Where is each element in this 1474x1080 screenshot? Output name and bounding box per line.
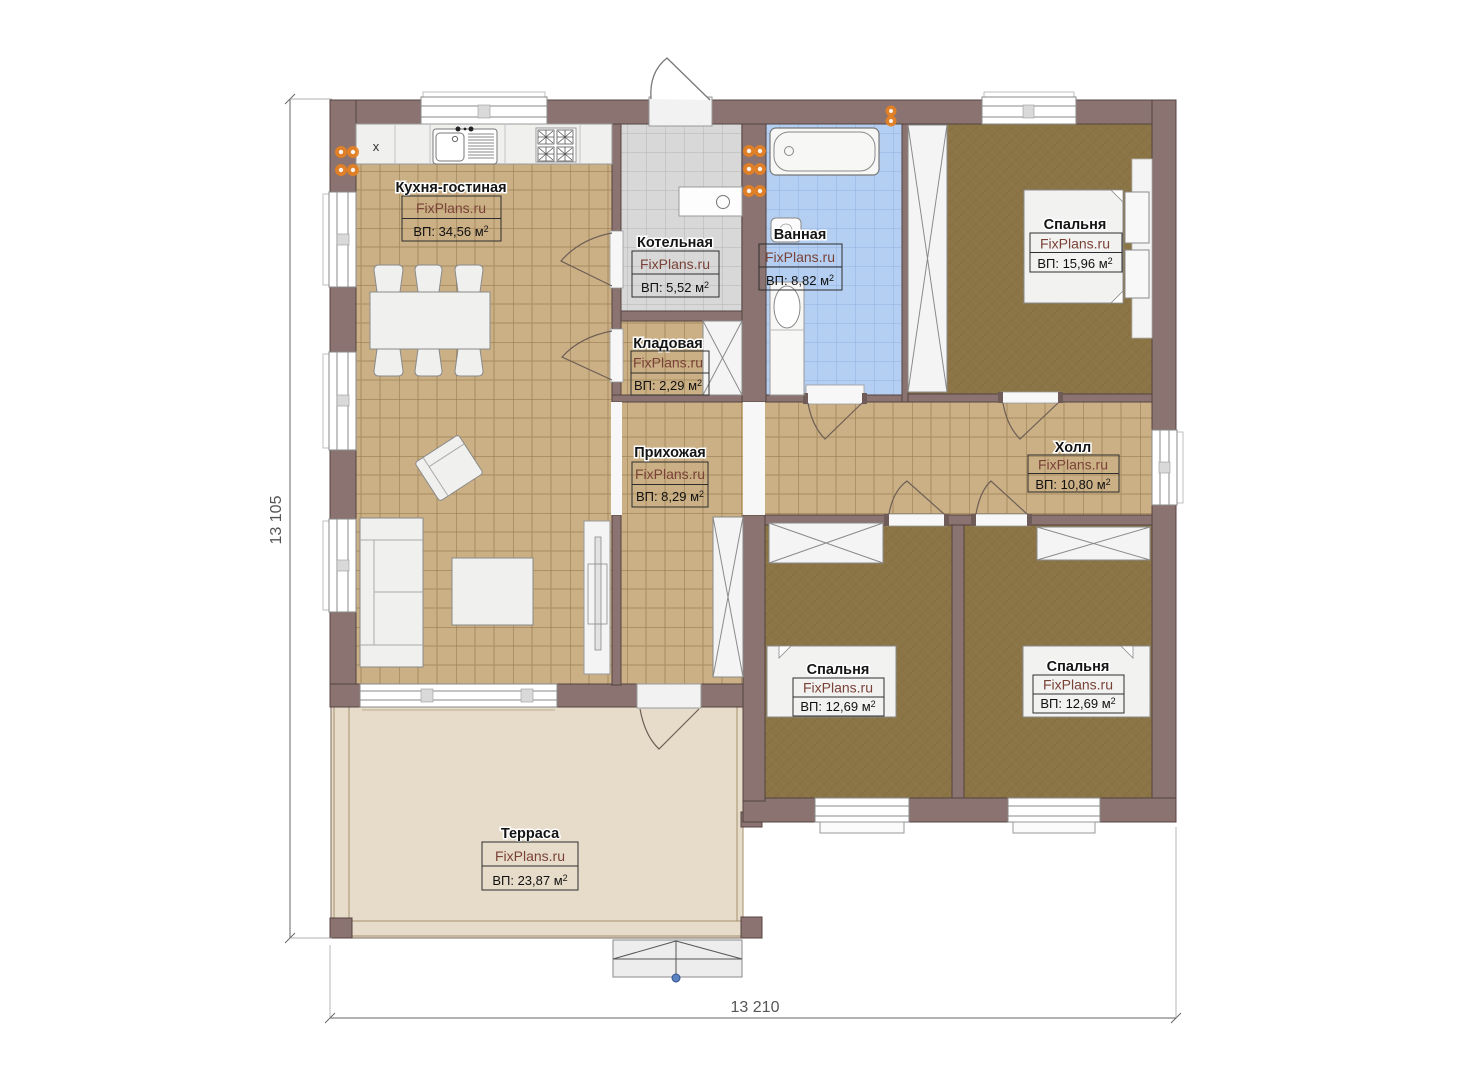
svg-text:Спальня: Спальня — [1047, 659, 1110, 675]
svg-text:13 210: 13 210 — [731, 999, 780, 1016]
svg-text:FixPlans.ru: FixPlans.ru — [633, 355, 703, 371]
svg-text:ВП: 8,82 м2: ВП: 8,82 м2 — [766, 273, 834, 288]
svg-text:Холл: Холл — [1055, 440, 1091, 456]
svg-text:ВП: 34,56 м2: ВП: 34,56 м2 — [413, 224, 488, 239]
svg-text:FixPlans.ru: FixPlans.ru — [803, 680, 873, 696]
svg-text:Терраса: Терраса — [501, 826, 560, 842]
svg-text:ВП: 23,87 м2: ВП: 23,87 м2 — [492, 873, 567, 888]
svg-text:FixPlans.ru: FixPlans.ru — [635, 466, 705, 482]
svg-text:13 105: 13 105 — [268, 495, 285, 544]
svg-text:ВП: 10,80 м2: ВП: 10,80 м2 — [1035, 477, 1110, 492]
svg-text:ВП: 2,29 м2: ВП: 2,29 м2 — [634, 378, 702, 393]
svg-text:ВП: 12,69 м2: ВП: 12,69 м2 — [1040, 696, 1115, 711]
svg-text:FixPlans.ru: FixPlans.ru — [640, 256, 710, 272]
svg-text:x: x — [373, 139, 380, 154]
svg-text:FixPlans.ru: FixPlans.ru — [1043, 677, 1113, 693]
svg-text:Спальня: Спальня — [1044, 217, 1107, 233]
svg-text:ВП: 5,52 м2: ВП: 5,52 м2 — [641, 280, 709, 295]
svg-text:ВП: 15,96 м2: ВП: 15,96 м2 — [1037, 256, 1112, 271]
svg-text:Котельная: Котельная — [637, 235, 713, 251]
svg-text:Спальня: Спальня — [807, 662, 870, 678]
svg-text:FixPlans.ru: FixPlans.ru — [1040, 236, 1110, 252]
svg-text:Кладовая: Кладовая — [633, 336, 702, 352]
svg-text:ВП: 8,29 м2: ВП: 8,29 м2 — [636, 489, 704, 504]
svg-text:ВП: 12,69 м2: ВП: 12,69 м2 — [800, 699, 875, 714]
svg-text:FixPlans.ru: FixPlans.ru — [765, 249, 835, 265]
svg-text:FixPlans.ru: FixPlans.ru — [416, 200, 486, 216]
svg-text:Прихожая: Прихожая — [634, 445, 706, 461]
svg-text:Ванная: Ванная — [774, 227, 827, 243]
svg-text:Кухня-гостиная: Кухня-гостиная — [395, 180, 506, 196]
svg-text:FixPlans.ru: FixPlans.ru — [1038, 457, 1108, 473]
svg-text:FixPlans.ru: FixPlans.ru — [495, 848, 565, 864]
